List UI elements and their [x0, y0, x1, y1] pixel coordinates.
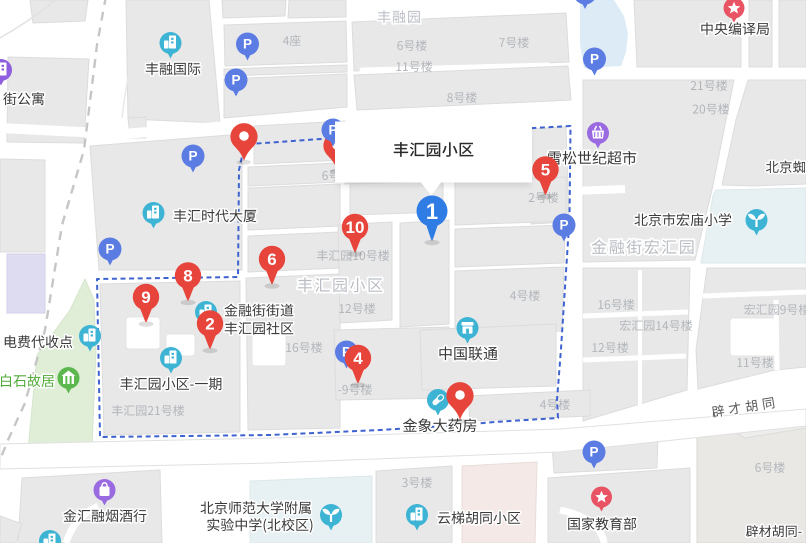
svg-text:P: P	[231, 73, 240, 88]
svg-text:6: 6	[267, 250, 276, 269]
svg-text:P: P	[243, 37, 252, 52]
svg-text:5: 5	[541, 161, 550, 180]
svg-text:9: 9	[141, 288, 150, 307]
svg-text:P: P	[590, 52, 599, 67]
svg-text:1: 1	[426, 199, 438, 224]
svg-text:10: 10	[346, 218, 365, 237]
svg-text:P: P	[188, 149, 197, 164]
svg-text:P: P	[589, 445, 598, 460]
svg-text:P: P	[105, 242, 114, 257]
svg-text:2: 2	[205, 315, 214, 334]
svg-text:4: 4	[353, 349, 363, 368]
svg-text:8: 8	[183, 267, 192, 286]
svg-text:P: P	[559, 218, 568, 233]
